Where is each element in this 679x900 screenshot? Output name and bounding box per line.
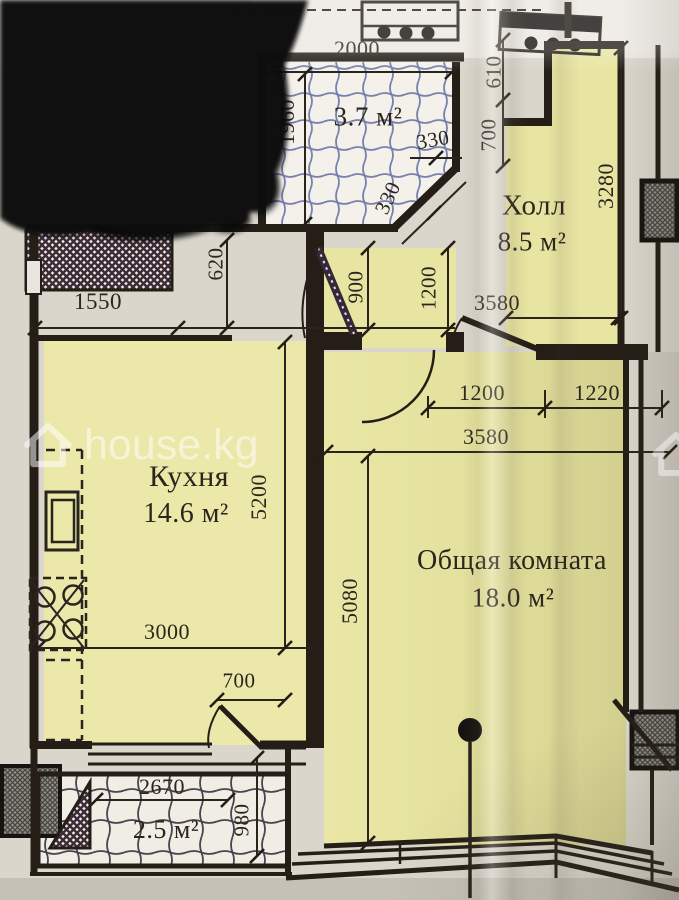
- dim-hall-setback-top: 610: [482, 56, 507, 89]
- house-icon-partial: [646, 428, 679, 485]
- dim-living-door-left: 1200: [459, 380, 505, 406]
- dim-hall-setback-bottom: 700: [477, 119, 502, 152]
- dim-kitchen-height: 5200: [246, 474, 272, 520]
- dim-kitchen-width: 3000: [144, 619, 190, 645]
- dim-living-width: 3580: [463, 424, 509, 450]
- watermark-text: house.kg: [84, 421, 259, 470]
- dim-hall-right: 3280: [593, 163, 619, 209]
- house-icon: [22, 419, 74, 471]
- balcony-area-label: 2.5 м²: [133, 815, 199, 845]
- column-bottom-right: [632, 712, 678, 768]
- vent-shaft-right: [642, 181, 677, 240]
- dim-hall-width: 3580: [474, 290, 520, 316]
- hall-name-label: Холл: [502, 190, 566, 223]
- dim-living-door-right: 1220: [574, 380, 620, 406]
- dim-entry-depth: 900: [344, 271, 369, 304]
- hall-area-label: 8.5 м²: [498, 227, 567, 258]
- dim-living-height: 5080: [337, 578, 363, 624]
- floor-plan-photo: 3.7 м² Холл 8.5 м² Кухня 14.6 м² Общая к…: [0, 0, 679, 900]
- censor-blob: [0, 0, 360, 270]
- kitchen-area-label: 14.6 м²: [143, 498, 229, 530]
- living-name-label: Общая комната: [417, 545, 607, 577]
- dim-balcony-door: 700: [223, 669, 256, 694]
- dim-balcony-depth: 980: [230, 804, 255, 837]
- dim-entry-width: 1200: [417, 266, 442, 310]
- dim-niche-width: 1550: [74, 289, 122, 315]
- watermark: house.kg: [22, 419, 259, 471]
- living-area-label: 18.0 м²: [472, 583, 555, 614]
- dim-balcony-width: 2670: [139, 774, 185, 800]
